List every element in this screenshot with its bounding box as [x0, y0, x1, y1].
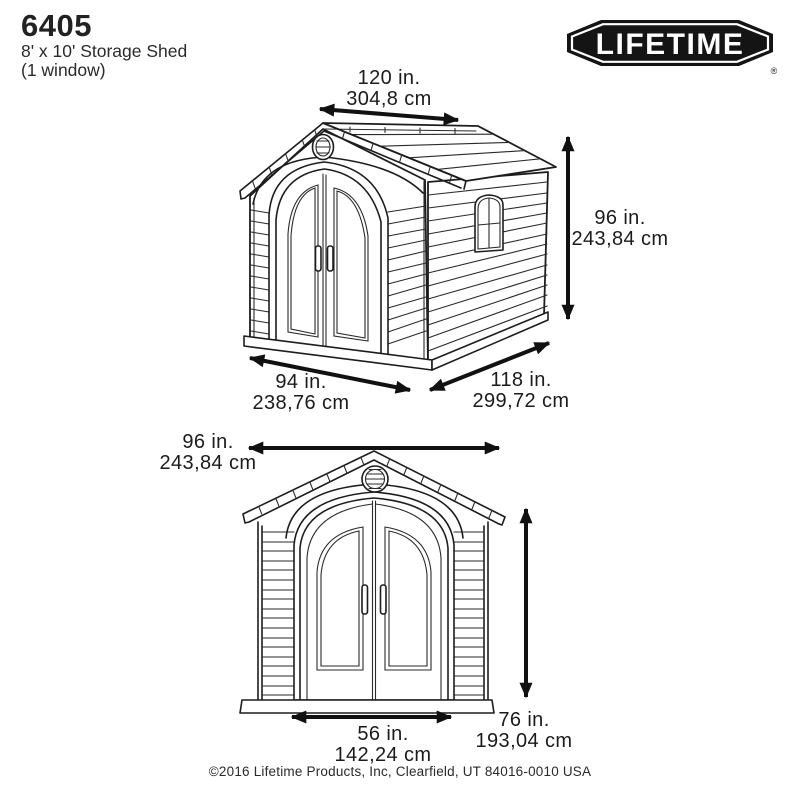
- shed-3d-double-doors: [269, 162, 388, 358]
- dim-value-cm: 299,72 cm: [473, 391, 570, 412]
- dim-value-cm: 243,84 cm: [572, 229, 669, 250]
- dim-label-roof-width: 120 in. 304,8 cm: [346, 68, 431, 109]
- dim-label-door-height: 76 in. 193,04 cm: [476, 710, 573, 751]
- dim-value-inches: 118 in.: [473, 370, 570, 391]
- dim-value-inches: 76 in.: [476, 710, 573, 731]
- side-window: [475, 195, 503, 252]
- dim-value-inches: 96 in.: [160, 432, 257, 453]
- dim-value-inches: 94 in.: [253, 372, 350, 393]
- dim-label-front-width: 94 in. 238,76 cm: [253, 372, 350, 413]
- shed-3d-view: [240, 123, 556, 370]
- door-handle-left: [316, 246, 322, 271]
- dim-value-cm: 243,84 cm: [160, 453, 257, 474]
- front-view-base: [240, 700, 494, 713]
- shed-diagram-canvas: [0, 0, 800, 800]
- dim-value-inches: 56 in.: [335, 724, 432, 745]
- dim-arrow-roof-width: [320, 109, 458, 120]
- dim-value-inches: 96 in.: [572, 208, 669, 229]
- dim-value-cm: 193,04 cm: [476, 731, 573, 752]
- gable-vent-icon: [313, 135, 334, 160]
- gable-vent-icon: [362, 466, 388, 492]
- product-dimension-sheet: { "header": { "model": "6405", "subtitle…: [0, 0, 800, 800]
- copyright-text: ©2016 Lifetime Products, Inc, Clearfield…: [209, 764, 591, 779]
- dim-label-door-width: 56 in. 142,24 cm: [335, 724, 432, 765]
- door-handle-left: [362, 585, 368, 614]
- dim-label-front-view-width: 96 in. 243,84 cm: [160, 432, 257, 473]
- door-handle-right: [381, 585, 387, 614]
- dim-value-cm: 304,8 cm: [346, 89, 431, 110]
- dim-value-inches: 120 in.: [346, 68, 431, 89]
- dim-value-cm: 238,76 cm: [253, 393, 350, 414]
- dim-label-depth: 118 in. 299,72 cm: [473, 370, 570, 411]
- shed-front-view: [240, 451, 505, 713]
- dim-value-cm: 142,24 cm: [335, 745, 432, 766]
- dim-label-height: 96 in. 243,84 cm: [572, 208, 669, 249]
- front-view-double-doors: [294, 492, 454, 700]
- door-handle-right: [328, 246, 334, 271]
